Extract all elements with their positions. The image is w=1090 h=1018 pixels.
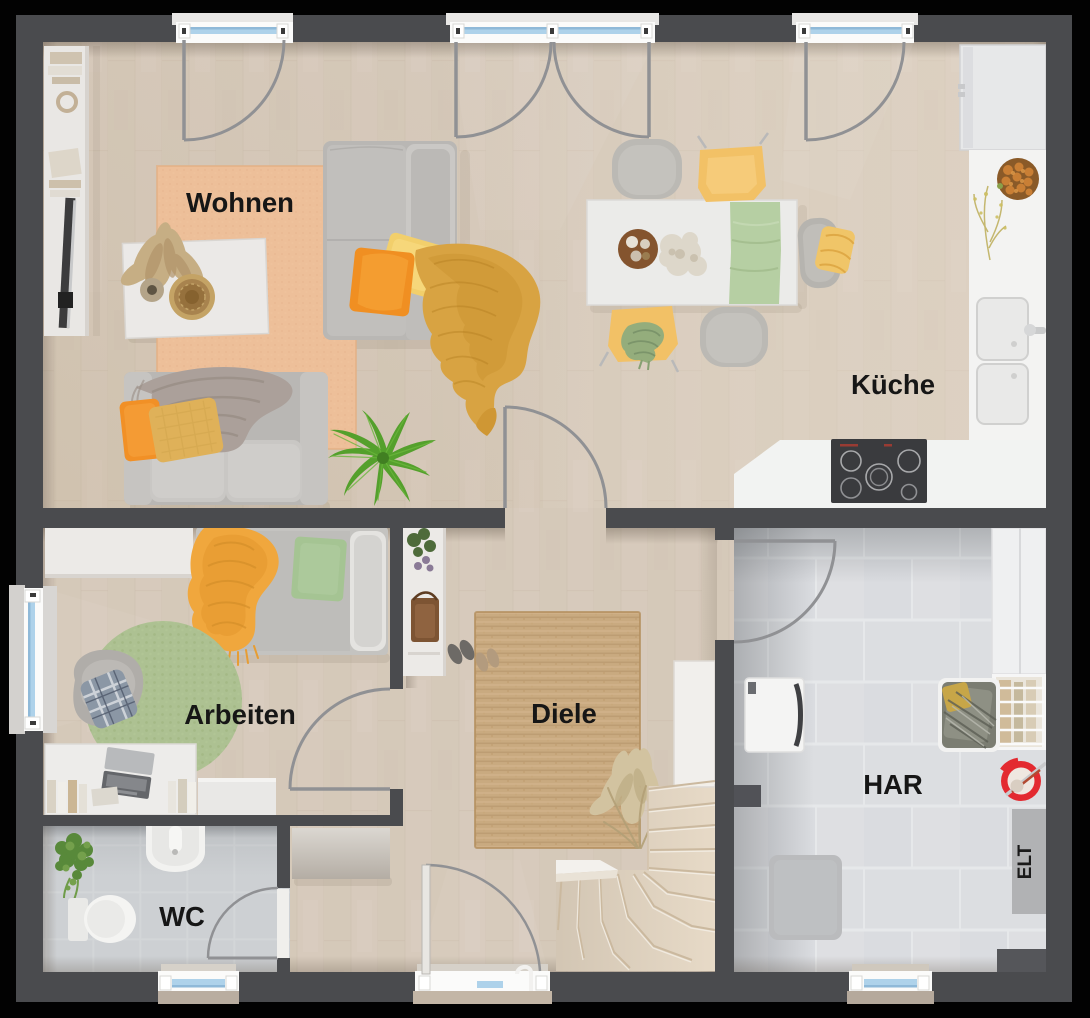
svg-text:WC: WC	[159, 901, 205, 932]
svg-text:ELT: ELT	[1015, 844, 1036, 879]
svg-text:Arbeiten: Arbeiten	[184, 699, 296, 730]
svg-text:Wohnen: Wohnen	[186, 187, 294, 218]
svg-text:Diele: Diele	[531, 698, 597, 729]
svg-text:HAR: HAR	[863, 769, 923, 800]
svg-text:Küche: Küche	[851, 369, 935, 400]
